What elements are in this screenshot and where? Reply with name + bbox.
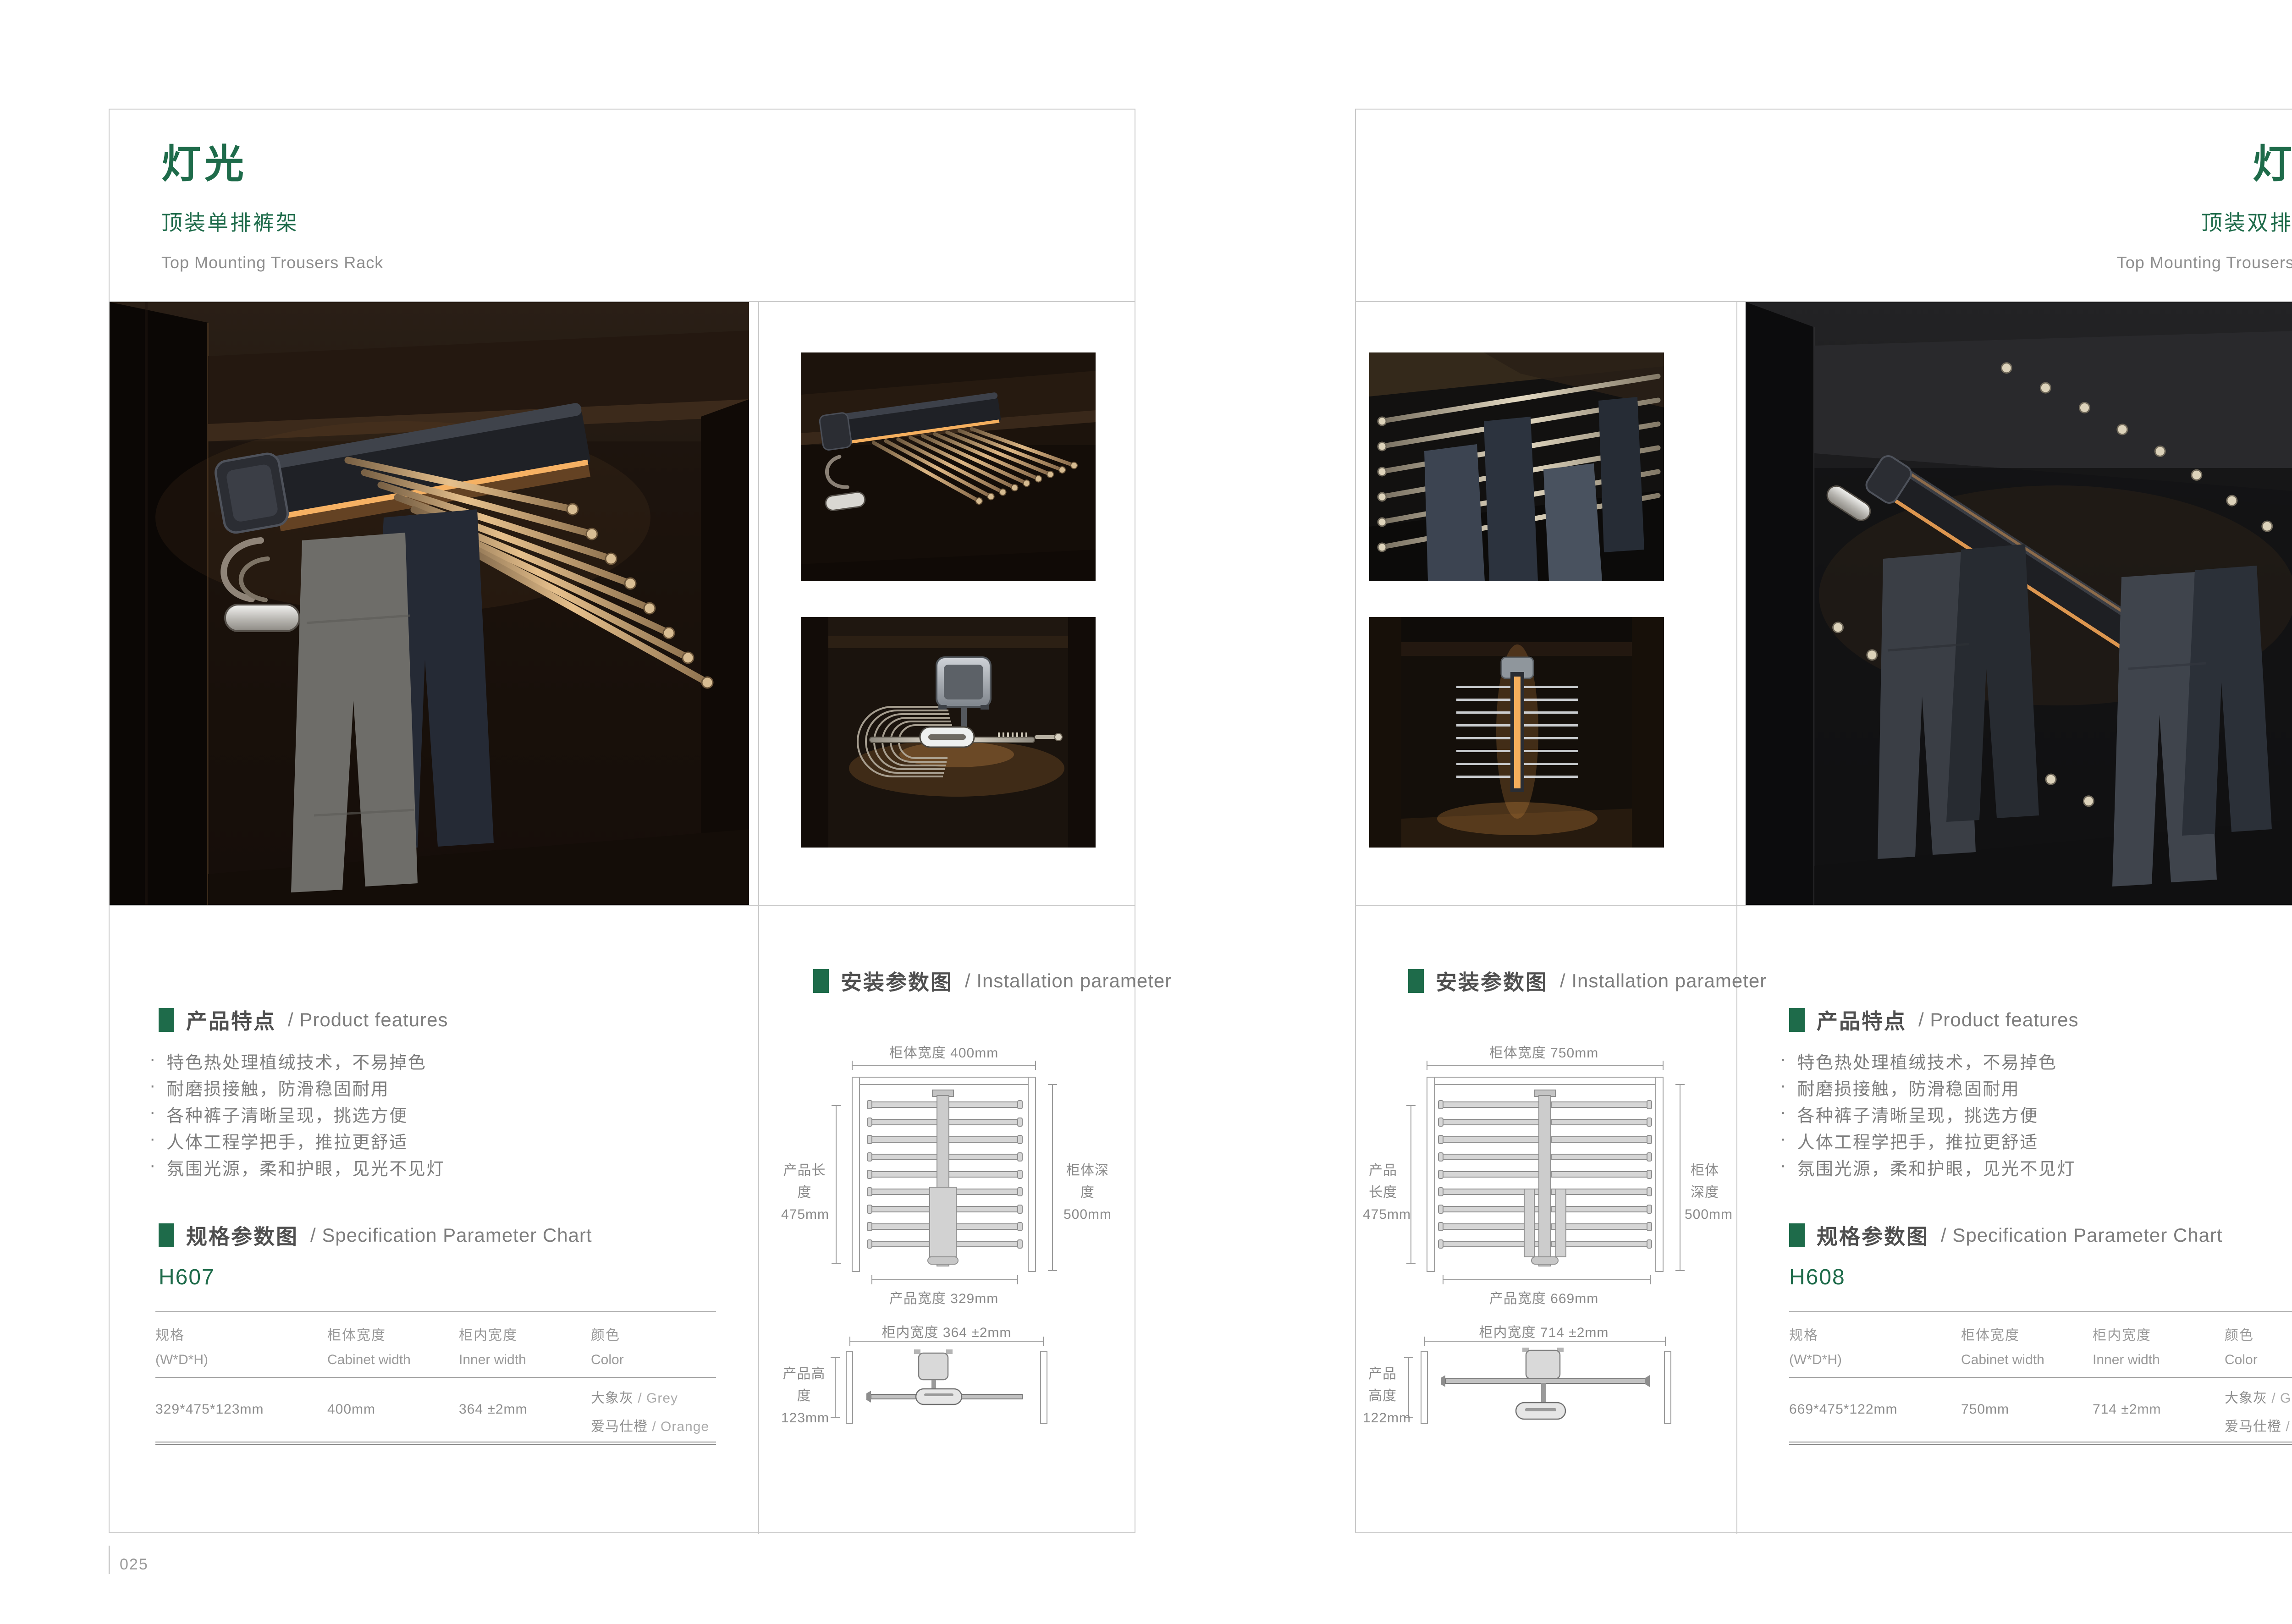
bullet-dot: · [149, 1155, 155, 1176]
dim-cabinet-depth: 柜体深度 500mm [1685, 1160, 1725, 1226]
table-header: 柜体宽度 Cabinet width [327, 1324, 411, 1368]
install-heading-en: / Installation parameter [965, 970, 1172, 992]
feature-item: · 特色热处理植绒技术，不易掉色 [149, 1048, 426, 1073]
dim-product-width: 产品宽度 669mm [1363, 1287, 1725, 1307]
features-section-title: 产品特点 / Product features [1789, 1005, 2079, 1035]
dim-product-height: 产品高度 122mm [1363, 1363, 1402, 1429]
install-diagram-top-view: 柜体宽度 750mm 产品长度 475mm 柜体深度 500mm 产品宽度 66… [1363, 1041, 1725, 1298]
table-rule [155, 1377, 716, 1378]
product-photo-main [1746, 302, 2292, 905]
page-subtitle: 顶装单排裤架 [161, 206, 383, 237]
feature-item: · 耐磨损接触，防滑稳固耐用 [149, 1075, 389, 1100]
bullet-dot: · [1780, 1048, 1786, 1069]
install-section-title: 安装参数图 / Installation parameter [813, 966, 1172, 996]
section-marker-icon [1789, 1223, 1805, 1247]
features-section-title: 产品特点 / Product features [159, 1005, 448, 1035]
features-heading-en: / Product features [288, 1009, 448, 1031]
product-photo-detail-1 [801, 352, 1096, 581]
section-marker-icon [813, 969, 829, 993]
spec-heading-zh: 规格参数图 [186, 1220, 298, 1250]
bullet-dot: · [1780, 1101, 1786, 1123]
page-number-left: 025 [109, 1546, 149, 1574]
page-title: 灯光 [2117, 143, 2292, 186]
features-heading-en: / Product features [1918, 1009, 2079, 1031]
bars-closeup-render [1369, 352, 1664, 581]
bullet-dot: · [149, 1128, 155, 1149]
feature-item: · 耐磨损接触，防滑稳固耐用 [1780, 1075, 2020, 1100]
install-heading-zh: 安装参数图 [1436, 966, 1548, 996]
product-photo-detail-2 [801, 617, 1096, 848]
install-heading-en: / Installation parameter [1560, 970, 1767, 992]
features-heading-zh: 产品特点 [186, 1005, 276, 1035]
section-marker-icon [1789, 1008, 1805, 1032]
model-number: H607 [159, 1265, 215, 1290]
feature-item: · 特色热处理植绒技术，不易掉色 [1780, 1048, 2057, 1073]
model-number: H608 [1789, 1265, 1846, 1290]
bullet-dot: · [1780, 1075, 1786, 1096]
dim-cabinet-width: 柜体宽度 400mm [781, 1041, 1107, 1062]
rack-detail-render [801, 352, 1096, 581]
column-divider [758, 302, 759, 1534]
catalog-page-left: 灯光 顶装单排裤架 Top Mounting Trousers Rack [109, 109, 1135, 1533]
wardrobe-double-rack-render [1746, 302, 2292, 905]
photo-bottom-divider [1356, 905, 2292, 906]
spec-table: 规格 (W*D*H) 柜体宽度 Cabinet width 柜内宽度 Inner… [1789, 1311, 2292, 1445]
page-title: 灯光 [161, 143, 383, 186]
install-diagram-side-view: 柜内宽度 364 ±2mm 产品高度 123mm [781, 1321, 1113, 1436]
spec-section-title: 规格参数图 / Specification Parameter Chart [1789, 1220, 2223, 1250]
table-header: 规格 (W*D*H) [1789, 1324, 1842, 1368]
dim-product-length: 产品长度 475mm [781, 1160, 828, 1226]
bullet-dot: · [149, 1048, 155, 1069]
table-cell-size: 329*475*123mm [155, 1402, 264, 1417]
catalog-spread: 灯光 顶装单排裤架 Top Mounting Trousers Rack [0, 0, 2292, 1624]
section-marker-icon [159, 1223, 174, 1247]
feature-item: · 氛围光源，柔和护眼，见光不见灯 [1780, 1155, 2076, 1180]
dim-inner-width: 柜内宽度 714 ±2mm [1363, 1321, 1725, 1341]
table-cell-inner-width: 714 ±2mm [2093, 1402, 2161, 1417]
top-view-linework [1363, 1041, 1725, 1298]
bullet-dot: · [1780, 1155, 1786, 1176]
rack-front-render [801, 617, 1096, 848]
rack-column-render [1369, 617, 1664, 848]
table-header: 颜色 Color [591, 1324, 624, 1368]
dim-cabinet-depth: 柜体深度 500mm [1062, 1160, 1113, 1226]
feature-item: · 人体工程学把手，推拉更舒适 [149, 1128, 408, 1153]
install-heading-zh: 安装参数图 [841, 966, 953, 996]
bullet-dot: · [1780, 1128, 1786, 1149]
spec-section-title: 规格参数图 / Specification Parameter Chart [159, 1220, 592, 1250]
catalog-page-right: 灯光 顶装双排裤架 Top Mounting Trousers Rack [1355, 109, 2292, 1533]
page-number-tick [109, 1546, 110, 1574]
spec-table: 规格 (W*D*H) 柜体宽度 Cabinet width 柜内宽度 Inner… [155, 1311, 716, 1445]
table-cell-cabinet-width: 750mm [1961, 1402, 2009, 1417]
table-header: 柜内宽度 Inner width [459, 1324, 526, 1368]
product-photo-detail-2 [1369, 617, 1664, 848]
section-marker-icon [1408, 969, 1424, 993]
spec-heading-zh: 规格参数图 [1817, 1220, 1929, 1250]
table-header: 柜内宽度 Inner width [2093, 1324, 2160, 1368]
table-cell-colors: 大象灰 / Grey 爱马仕橙 / Orange [2225, 1384, 2292, 1441]
bullet-dot: · [149, 1075, 155, 1096]
install-diagram-top-view: 柜体宽度 400mm 产品长度 475mm 柜体深度 500mm 产品宽度 32… [781, 1041, 1113, 1298]
dim-inner-width: 柜内宽度 364 ±2mm [781, 1321, 1112, 1341]
photo-bottom-divider [110, 905, 1135, 906]
page-header: 灯光 顶装双排裤架 Top Mounting Trousers Rack [2117, 143, 2292, 272]
dim-product-width: 产品宽度 329mm [781, 1287, 1107, 1307]
table-rule [1789, 1377, 2292, 1378]
install-diagram-side-view: 柜内宽度 714 ±2mm 产品高度 122mm [1363, 1321, 1725, 1436]
spec-heading-en: / Specification Parameter Chart [310, 1224, 592, 1246]
spec-heading-en: / Specification Parameter Chart [1941, 1224, 2223, 1246]
feature-item: · 各种裤子清晰呈现，挑选方便 [1780, 1101, 2039, 1127]
product-photo-main [110, 302, 749, 905]
install-section-title: 安装参数图 / Installation parameter [1408, 966, 1767, 996]
column-divider [1736, 302, 1737, 1534]
table-cell-cabinet-width: 400mm [327, 1402, 375, 1417]
table-header: 柜体宽度 Cabinet width [1961, 1324, 2044, 1368]
product-photo-detail-1 [1369, 352, 1664, 581]
dim-product-height: 产品高度 123mm [781, 1363, 827, 1429]
feature-item: · 氛围光源，柔和护眼，见光不见灯 [149, 1155, 445, 1180]
feature-item: · 各种裤子清晰呈现，挑选方便 [149, 1101, 408, 1127]
page-subtitle: 顶装双排裤架 [2117, 206, 2292, 237]
page-header: 灯光 顶装单排裤架 Top Mounting Trousers Rack [161, 143, 383, 272]
page-subtitle-en: Top Mounting Trousers Rack [161, 253, 383, 272]
features-heading-zh: 产品特点 [1817, 1005, 1906, 1035]
table-header: 规格 (W*D*H) [155, 1324, 208, 1368]
table-cell-colors: 大象灰 / Grey 爱马仕橙 / Orange [591, 1384, 709, 1441]
table-cell-size: 669*475*122mm [1789, 1402, 1898, 1417]
dim-product-length: 产品长度 475mm [1363, 1160, 1403, 1226]
feature-item: · 人体工程学把手，推拉更舒适 [1780, 1128, 2039, 1153]
page-subtitle-en: Top Mounting Trousers Rack [2117, 253, 2292, 272]
wardrobe-rack-render [110, 302, 749, 905]
dim-cabinet-width: 柜体宽度 750mm [1363, 1041, 1725, 1062]
bullet-dot: · [149, 1101, 155, 1123]
table-cell-inner-width: 364 ±2mm [459, 1402, 528, 1417]
section-marker-icon [159, 1008, 174, 1032]
table-header: 颜色 Color [2225, 1324, 2258, 1368]
